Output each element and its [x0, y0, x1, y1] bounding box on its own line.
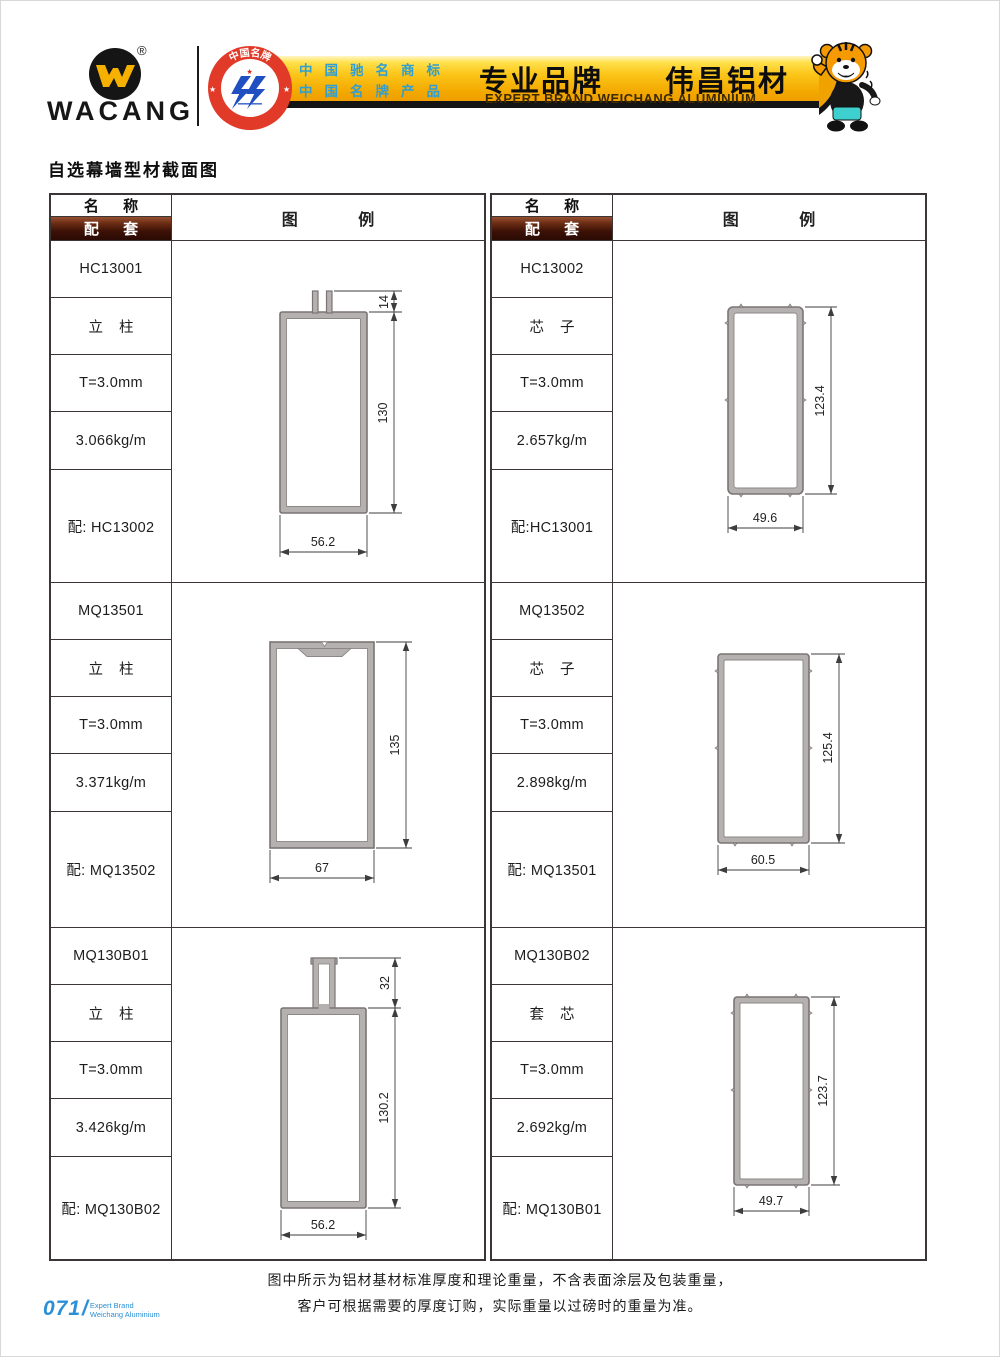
profile-row-hc13002: HC13002 芯 子 T=3.0mm 2.657kg/m 配:HC13001	[492, 241, 925, 583]
table-header: 名 称 配 套 图 例	[51, 195, 484, 241]
profile-weight: 3.426kg/m	[51, 1099, 171, 1157]
profile-drawing-mq13501: 135 67	[172, 583, 484, 925]
profile-type: 芯 子	[492, 298, 612, 355]
dim-width-label: 56.2	[311, 535, 335, 549]
profile-weight: 2.657kg/m	[492, 412, 612, 470]
profile-type: 立 柱	[51, 298, 171, 355]
header-name: 名 称	[51, 195, 171, 217]
profile-code: MQ130B01	[51, 928, 171, 985]
dim-height-label: 123.4	[813, 385, 827, 416]
profile-row-mq130b01: MQ130B01 立 柱 T=3.0mm 3.426kg/m 配: MQ130B…	[51, 928, 484, 1259]
profile-type: 套 芯	[492, 985, 612, 1042]
dim-height-label: 125.4	[821, 732, 835, 763]
wacang-logo: ® WACANG	[45, 41, 195, 131]
footer-label-line2: Weichang Aluminium	[90, 1310, 160, 1319]
profile-type: 芯 子	[492, 640, 612, 697]
profile-code: HC13002	[492, 241, 612, 298]
profile-thickness: T=3.0mm	[51, 697, 171, 754]
page-number-slash: /	[82, 1297, 88, 1321]
badge-star-right: ★	[283, 85, 290, 94]
page-number-block: 071 / Expert Brand Weichang Aluminium	[43, 1297, 160, 1321]
dim-height-label: 123.7	[816, 1075, 830, 1106]
profile-drawing-mq130b01: 32 130.2 56.2	[172, 928, 484, 1259]
dim-top-label: 14	[377, 295, 391, 309]
cert-line1: 中国驰名商标	[299, 60, 452, 81]
dim-height-label: 130	[376, 403, 390, 424]
dim-height-label: 130.2	[377, 1092, 391, 1123]
header-divider	[197, 46, 199, 126]
wacang-w-icon	[88, 47, 142, 101]
page-title: 自选幕墙型材截面图	[48, 156, 219, 181]
profile-thickness: T=3.0mm	[51, 1042, 171, 1099]
profile-thickness: T=3.0mm	[492, 1042, 612, 1099]
profile-drawing-hc13002: 123.4 49.6	[613, 241, 925, 580]
dim-width-label: 49.6	[753, 511, 777, 525]
header-match: 配 套	[492, 217, 612, 240]
profile-match: 配: MQ13502	[51, 812, 171, 927]
profile-drawing-mq130b02: 123.7 49.7	[613, 928, 925, 1259]
profile-code: MQ13501	[51, 583, 171, 640]
header-match: 配 套	[51, 217, 171, 240]
dim-height-label: 135	[388, 735, 402, 756]
profile-row-mq13502: MQ13502 芯 子 T=3.0mm 2.898kg/m 配: MQ13501	[492, 583, 925, 928]
profile-weight: 3.066kg/m	[51, 412, 171, 470]
page-number-labels: Expert Brand Weichang Aluminium	[90, 1297, 160, 1319]
header-name: 名 称	[492, 195, 612, 217]
profile-thickness: T=3.0mm	[51, 355, 171, 412]
profile-weight: 2.898kg/m	[492, 754, 612, 812]
profile-row-mq13501: MQ13501 立 柱 T=3.0mm 3.371kg/m 配: MQ13502	[51, 583, 484, 928]
profile-match: 配: HC13002	[51, 470, 171, 582]
certification-text: 中国驰名商标 中国名牌产品	[299, 60, 452, 102]
profile-match: 配: MQ130B01	[492, 1157, 612, 1259]
profile-table-left: 名 称 配 套 图 例 HC13001 立 柱 T=3.0mm 3.066kg/…	[49, 193, 486, 1261]
page-number: 071	[43, 1297, 81, 1321]
profile-thickness: T=3.0mm	[492, 355, 612, 412]
china-top-brand-badge: 中国名牌 CHINA TOP BRAND ★ ★ ★	[206, 43, 294, 133]
header-legend: 图 例	[172, 195, 484, 240]
registered-mark: ®	[137, 43, 147, 58]
brand-name: WACANG	[47, 96, 193, 127]
profile-code: MQ130B02	[492, 928, 612, 985]
dim-width-label: 49.7	[759, 1194, 783, 1208]
profile-code: MQ13502	[492, 583, 612, 640]
note-line1: 图中所示为铝材基材标准厚度和理论重量，不含表面涂层及包装重量，	[1, 1267, 999, 1293]
cert-line2: 中国名牌产品	[299, 81, 452, 102]
profile-weight: 3.371kg/m	[51, 754, 171, 812]
dim-width-label: 60.5	[751, 853, 775, 867]
profile-match: 配: MQ130B02	[51, 1157, 171, 1259]
profile-type: 立 柱	[51, 640, 171, 697]
profile-drawing-mq13502: 125.4 60.5	[613, 583, 925, 925]
header-legend: 图 例	[613, 195, 925, 240]
profile-match: 配:HC13001	[492, 470, 612, 582]
profile-drawing-hc13001: 14 130 56.2	[172, 241, 484, 580]
profile-row-hc13001: HC13001 立 柱 T=3.0mm 3.066kg/m 配: HC13002	[51, 241, 484, 583]
profile-table-right: 名 称 配 套 图 例 HC13002 芯 子 T=3.0mm 2.657kg/…	[490, 193, 927, 1261]
profile-thickness: T=3.0mm	[492, 697, 612, 754]
profile-match: 配: MQ13501	[492, 812, 612, 927]
dim-width-label: 67	[315, 861, 329, 875]
header-banner: 中国驰名商标 中国名牌产品 专业品牌 伟昌铝材 EXPERT BRAND WEI…	[251, 56, 819, 108]
badge-star-center: ★	[247, 68, 253, 76]
profile-row-mq130b02: MQ130B02 套 芯 T=3.0mm 2.692kg/m 配: MQ130B…	[492, 928, 925, 1259]
profile-weight: 2.692kg/m	[492, 1099, 612, 1157]
profile-code: HC13001	[51, 241, 171, 298]
banner-title-en: EXPERT BRAND WEICHANG ALUMINIUM	[485, 91, 756, 106]
catalog-page: ® WACANG 中国驰名商标 中国名牌产品 专业品牌 伟昌铝材 EXPERT …	[0, 0, 1000, 1357]
badge-star-left: ★	[209, 85, 216, 94]
dim-top-label: 32	[378, 976, 392, 990]
dim-width-label: 56.2	[311, 1218, 335, 1232]
footer-label-line1: Expert Brand	[90, 1301, 160, 1310]
tiger-mascot	[807, 37, 881, 133]
table-header: 名 称 配 套 图 例	[492, 195, 925, 241]
profile-type: 立 柱	[51, 985, 171, 1042]
